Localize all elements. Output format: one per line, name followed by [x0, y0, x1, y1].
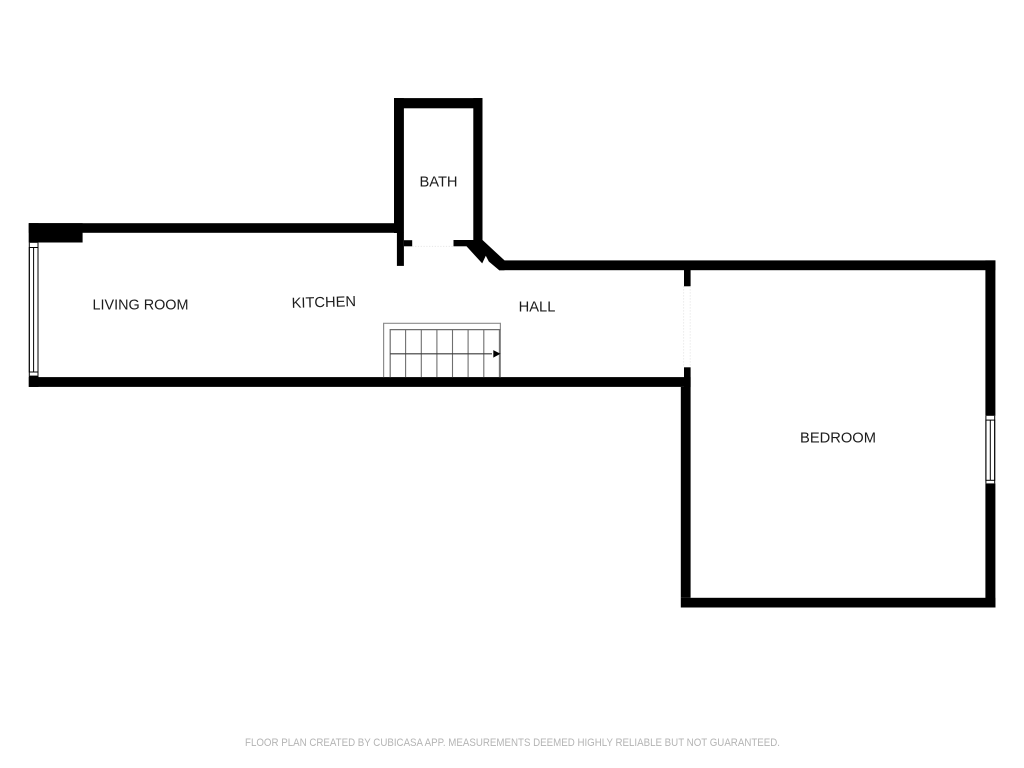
svg-text:LIVING ROOM: LIVING ROOM: [93, 298, 189, 314]
svg-text:BATH: BATH: [419, 175, 457, 191]
svg-text:KITCHEN: KITCHEN: [291, 294, 356, 312]
svg-text:FLOOR PLAN CREATED BY CUBICASA: FLOOR PLAN CREATED BY CUBICASA APP. MEAS…: [245, 737, 780, 749]
svg-text:HALL: HALL: [519, 300, 556, 316]
svg-text:BEDROOM: BEDROOM: [800, 430, 876, 446]
